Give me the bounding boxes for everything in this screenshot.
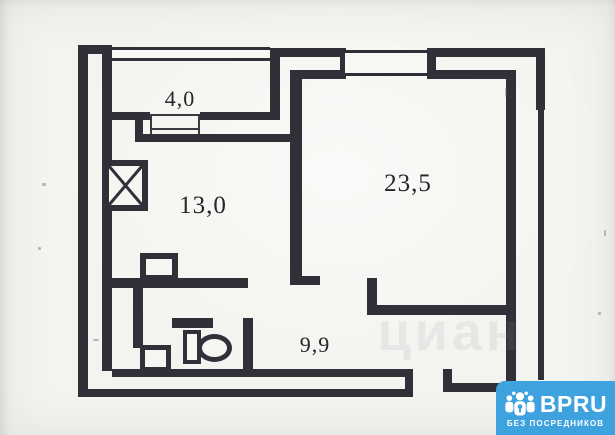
wall-left-outer [78, 45, 88, 397]
shaft-x-icon [103, 160, 148, 211]
balcony-window [112, 47, 270, 61]
stove-icon [140, 253, 178, 281]
badge-row: BPRU [504, 390, 607, 417]
wall-bath-top [172, 318, 213, 328]
watermark-text: циан [345, 300, 555, 364]
scan-speck [505, 88, 507, 97]
wall-hall-left-lower [102, 288, 112, 371]
wall-room23-top-right [435, 70, 516, 79]
room-area-label: 23,5 [368, 170, 448, 198]
bpru-badge: BPRU БЕЗ ПОСРЕДНИКОВ [496, 381, 615, 435]
floor-plan-scan: 4,0 13,0 23,5 9,9 циан BPRU БЕЗ ПОС [0, 0, 615, 435]
scan-speck [42, 183, 46, 186]
door-threshold-line [152, 128, 198, 130]
sink-icon [140, 345, 171, 372]
wall-bath-right [243, 318, 253, 372]
toilet-bowl [197, 334, 232, 362]
wall-top-right [430, 48, 545, 57]
scan-speck [93, 339, 99, 341]
wall-bath-left [133, 288, 143, 348]
people-group-icon [504, 390, 536, 417]
wall-balcony-bottom-r [200, 112, 280, 120]
scan-speck [38, 247, 41, 250]
living-room-window [345, 50, 427, 76]
wall-central [290, 70, 302, 285]
room-area-label: 13,0 [163, 192, 243, 220]
wall-top-mid [270, 48, 345, 57]
wall-central-foot [290, 276, 320, 285]
shaft-x-lines [109, 166, 142, 205]
wall-room13-top [143, 134, 295, 142]
wall-right-outer-thick [536, 48, 545, 110]
scan-speck [604, 230, 606, 236]
wall-balcony-right [270, 48, 280, 120]
wall-bottom-lower [78, 389, 413, 397]
badge-brand: BPRU [540, 393, 607, 415]
room-area-label: 4,0 [148, 86, 212, 112]
badge-tagline: БЕЗ ПОСРЕДНИКОВ [507, 419, 604, 428]
scan-speck [598, 312, 601, 315]
room-area-label: 9,9 [285, 332, 345, 358]
wall-balcony-step [135, 112, 143, 142]
